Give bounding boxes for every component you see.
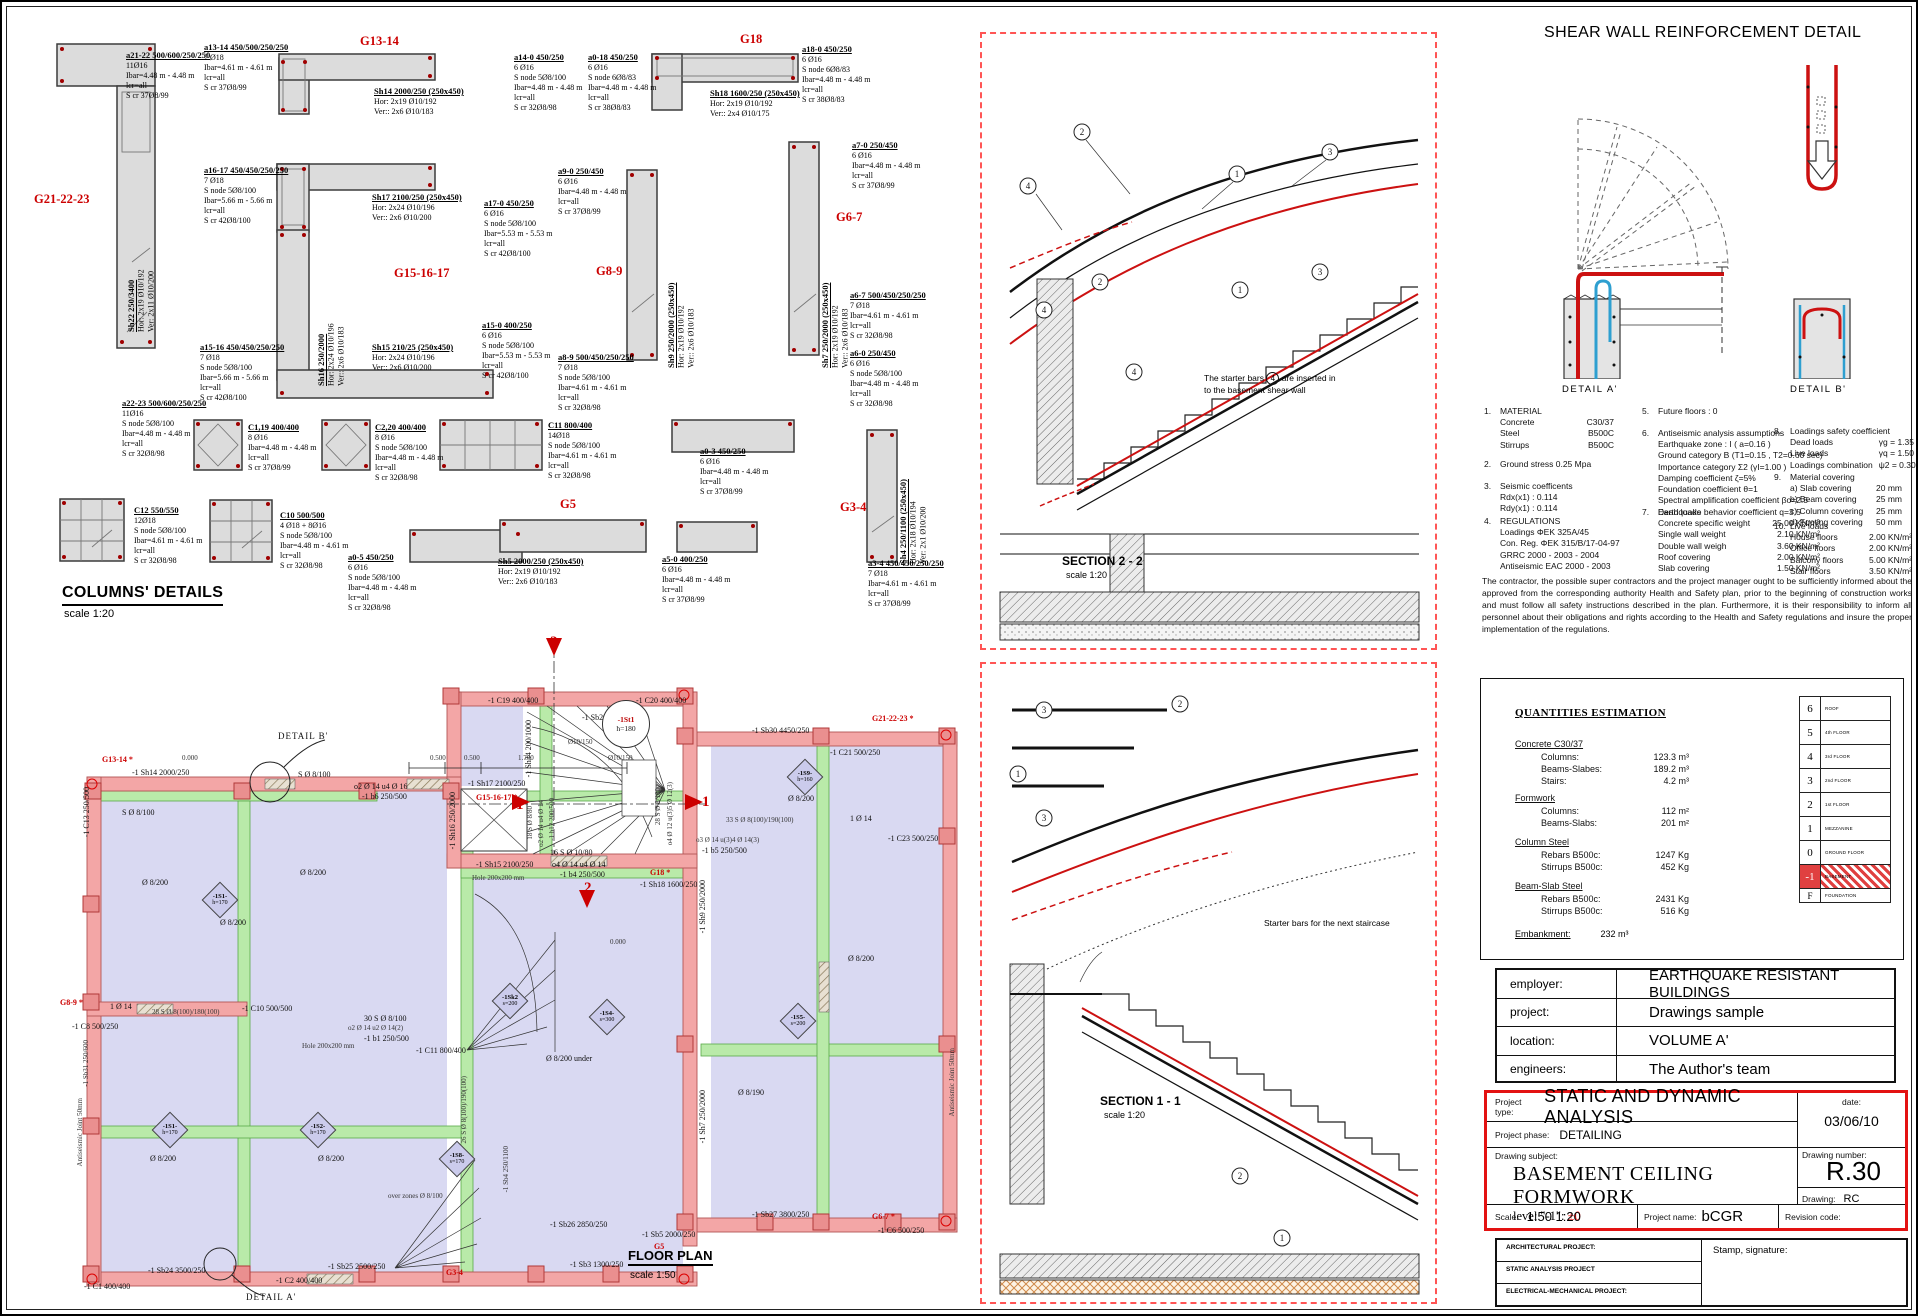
column-detail-a6-0: a6-0 250/4506 Ø16 S node 5Ø8/100 Ibar=4.… xyxy=(850,348,944,409)
plan-label-g21: G21-22-23 * xyxy=(872,714,914,723)
section-1-1-box: 3 2 1 3 2 1 Starter bars for the next st… xyxy=(980,662,1437,1304)
quantities-title: QUANTITIES ESTIMATION xyxy=(1515,707,1666,719)
plan-label-aj2: Antiseismic Joint 50mm xyxy=(76,1098,84,1166)
note-seismic: 3.Seismic coefficents Rdx(x1) : 0.114 Rd… xyxy=(1484,481,1624,515)
columns-details-title: COLUMNS' DETAILS xyxy=(62,584,223,606)
group-label-g3-4: G3-4 xyxy=(840,500,866,515)
column-detail-a3-4: a3-4 450/450/250/2507 Ø18 Ibar=4.61 m - … xyxy=(868,558,962,609)
plan-label-sb27: -1 Sb27 3800/250 xyxy=(752,1210,809,1219)
svg-text:1: 1 xyxy=(1016,769,1021,779)
section-2-2-title: SECTION 2 - 2 xyxy=(1062,554,1143,568)
plan-label-s1080: 16 S Ø 10/80 xyxy=(550,848,592,857)
plan-label-oz: over zones Ø 8/100 xyxy=(388,1192,443,1200)
project-info-table: employer:EARTHQUAKE RESISTANT BUILDINGS … xyxy=(1495,968,1896,1083)
column-detail-a7-0: a7-0 250/4506 Ø16 Ibar=4.48 m - 4.48 m l… xyxy=(852,140,946,191)
floor-row: 6ROOF xyxy=(1799,696,1891,721)
plan-marker-1a: 1 xyxy=(516,797,524,814)
plan-label-e0a: 0.000 xyxy=(182,754,198,762)
plan-label-g15: G15-16-17 * xyxy=(476,793,518,802)
plan-label-c2: -1 C2 400/400 xyxy=(276,1276,322,1285)
plan-label-sb5: -1 Sb5 2000/250 xyxy=(642,1230,695,1239)
plan-label-f15a: Ø10/150 xyxy=(568,738,593,746)
plan-label-s8b: S Ø 8/100 xyxy=(122,808,154,817)
drawing-subject-value: BASEMENT CEILING FORMWORK xyxy=(1513,1163,1797,1209)
plan-label-s28100: 28 S Ø 8/100 xyxy=(654,788,662,825)
plan-label-f190: Ø 8/190 xyxy=(738,1088,764,1097)
svg-text:3: 3 xyxy=(1328,147,1333,157)
drawing-value: RC xyxy=(1844,1193,1860,1205)
drawing-subject-label: Drawing subject: xyxy=(1495,1151,1797,1161)
plan-label-c10: -1 C10 500/500 xyxy=(242,1004,292,1013)
section-1-1-drawing: 3 2 1 3 2 1 xyxy=(982,664,1435,1302)
floors-diagram: 6ROOF54th FLOOR43rd FLOOR32nd FLOOR21st … xyxy=(1799,697,1891,903)
plan-label-f2e: Ø 8/200 xyxy=(848,954,874,963)
group-label-g18: G18 xyxy=(740,32,762,47)
svg-text:2: 2 xyxy=(1238,1171,1243,1181)
column-detail-a15-16: a15-16 450/450/250/2507 Ø18 S node 5Ø8/1… xyxy=(200,342,294,403)
plan-label-c20: -1 C20 400/400 xyxy=(636,696,686,705)
plan-label-b4: -1 b4 250/500 xyxy=(560,870,605,879)
section-2-2-scale: scale 1:20 xyxy=(1066,570,1107,580)
column-detail-a8-9: a8-9 500/450/250/2507 Ø18 S node 5Ø8/100… xyxy=(558,352,652,413)
floor-plan-drawing xyxy=(77,632,962,1304)
project-name-label: Project name: xyxy=(1644,1212,1696,1222)
plan-label-f2f: Ø 8/200 xyxy=(150,1154,176,1163)
plan-label-sh15: -1 Sh15 2100/250 xyxy=(476,860,533,869)
plan-label-c8: -1 C8 500/250 xyxy=(72,1022,118,1031)
plan-label-c11: -1 C11 800/400 xyxy=(416,1046,466,1055)
scale-label: Scale: xyxy=(1495,1212,1519,1222)
column-detail-sh16: Sh16 250/2000Hor: 2x24 Ø10/196 Ver:: 2x6… xyxy=(316,252,347,386)
column-detail-sh5: Sh5 2000/250 (250x450)Hor: 2x19 Ø10/192 … xyxy=(498,556,592,587)
plan-label-o2u416: o2 Ø 14 u4 Ø 16 xyxy=(354,782,408,791)
section-1-1-title: SECTION 1 - 1 xyxy=(1100,1094,1181,1108)
plan-label-o2u214: o2 Ø 14 u2 Ø 14(2) xyxy=(348,1024,403,1032)
drawing-sheet: G21-22-23 G13-14 G18 G15-16-17 G8-9 G6-7… xyxy=(0,0,1918,1316)
column-detail-c12: C12 550/55012Ø18 S node 5Ø8/100 Ibar=4.6… xyxy=(134,505,228,566)
project-type-label: Project type: xyxy=(1495,1097,1536,1117)
group-label-g5: G5 xyxy=(560,497,576,512)
plan-label-s28: 28 S Ø 8(100)/180(100) xyxy=(152,1008,219,1016)
column-detail-a9-0: a9-0 250/4506 Ø16 Ibar=4.48 m - 4.48 m l… xyxy=(558,166,652,217)
plan-label-c13: -1 C13 250/500 xyxy=(82,787,91,837)
section-2-2-drawing: 2 4 1 3 2 4 1 3 4 xyxy=(982,34,1435,648)
plan-label-f2d: Ø 8/200 xyxy=(788,794,814,803)
plan-label-b6: -1 b6 250/500 xyxy=(362,792,407,801)
group-label-g8-9: G8-9 xyxy=(596,264,622,279)
detail-a-label: DETAIL A' xyxy=(1562,384,1618,395)
plan-label-sb26: -1 Sb26 2850/250 xyxy=(550,1220,607,1229)
note-live-loads: 10.Live loads House floors2.00 KN/m²Offi… xyxy=(1774,521,1912,577)
plan-label-sh18: -1 Sh18 1600/250 xyxy=(640,880,697,889)
plan-label-s8a: S Ø 8/100 xyxy=(298,770,330,779)
plan-label-detail-a: DETAIL A' xyxy=(246,1292,296,1302)
revision-code-label: Revision code: xyxy=(1785,1212,1841,1222)
plan-label-c21: -1 C21 500/250 xyxy=(830,748,880,757)
plan-label-o4o12: o4 Ø 12 u(3)5 Ø 12(3) xyxy=(666,782,674,845)
project-phase-value: DETAILING xyxy=(1559,1128,1621,1142)
plan-label-o2u414: o2 Ø 14 u4 Ø 14 xyxy=(537,800,545,847)
note-regulations: 4.REGULATIONS Loadings ΦEK 325A/45 Con. … xyxy=(1484,516,1634,572)
column-detail-c11: C11 800/40014Ø18 S node 5Ø8/100 Ibar=4.6… xyxy=(548,420,642,481)
info-row: employer:EARTHQUAKE RESISTANT BUILDINGS xyxy=(1497,970,1894,999)
plan-label-c6: -1 C6 500/250 xyxy=(878,1226,924,1235)
floor-plan-scale: scale 1:50 xyxy=(630,1270,676,1281)
quantities-formwork: Formwork Columns:112 m²Beams-Slabs:201 m… xyxy=(1515,793,1739,829)
floor-plan-title: FLOOR PLAN xyxy=(628,1248,713,1266)
plan-label-sb3: -1 Sb3 1300/250 xyxy=(570,1260,623,1269)
plan-label-f2c: Ø 8/200 xyxy=(300,868,326,877)
column-detail-a6-7: a6-7 500/450/250/2507 Ø18 Ibar=4.61 m - … xyxy=(850,290,944,341)
plan-label-c1: -1 C1 400/400 xyxy=(84,1282,130,1291)
static-analysis-project-label: STATIC ANALYSIS PROJECT xyxy=(1497,1262,1701,1284)
svg-text:2: 2 xyxy=(1178,699,1183,709)
svg-text:1: 1 xyxy=(1235,169,1240,179)
drawing-number-value: R.30 xyxy=(1802,1156,1905,1187)
svg-text:4: 4 xyxy=(1042,305,1047,315)
title-block: Project type: STATIC AND DYNAMIC ANALYSI… xyxy=(1484,1090,1908,1231)
note-ground-stress: 2.Ground stress 0.25 Mpa xyxy=(1484,459,1624,470)
columns-details-scale: scale 1:20 xyxy=(64,608,114,620)
stair-label-circle: -1St1h=180 xyxy=(602,700,650,748)
column-detail-sh14: Sh14 2000/250 (250x450)Hor: 2x19 Ø10/192… xyxy=(374,86,468,117)
column-detail-a22-23: a22-23 500/600/250/25011Ø16 S node 5Ø8/1… xyxy=(122,398,216,459)
quantities-column-steel: Column Steel Rebars B500c:1247 KgStirrup… xyxy=(1515,837,1739,873)
floor-row: FFOUNDATION xyxy=(1799,888,1891,903)
column-detail-a13-14: a13-14 450/500/250/2507 Ø18 Ibar=4.61 m … xyxy=(204,42,298,93)
group-label-g13-14: G13-14 xyxy=(360,34,399,49)
shear-wall-drawing xyxy=(1492,57,1918,379)
plan-label-sb30: -1 Sb30 4450/250 xyxy=(752,726,809,735)
column-detail-a18-0: a18-0 450/2506 Ø16 S node 6Ø8/83 Ibar=4.… xyxy=(802,44,896,105)
plan-label-hole1: Hole 200x200 mm xyxy=(472,874,525,882)
safety-disclaimer: The contractor, the possible super contr… xyxy=(1482,576,1912,635)
section-1-1-scale: scale 1:20 xyxy=(1104,1110,1145,1120)
plan-label-sb25: -1 Sb25 2500/250 xyxy=(328,1262,385,1271)
column-detail-a0-18: a0-18 450/2506 Ø16 S node 6Ø8/83 Ibar=4.… xyxy=(588,52,682,113)
scale-value: 1:50 1:20 xyxy=(1527,1209,1581,1224)
stamp-signature-label: Stamp, signature: xyxy=(1702,1240,1906,1305)
shear-wall-title: SHEAR WALL REINFORCEMENT DETAIL xyxy=(1544,24,1861,42)
column-detail-a0-3: a0-3 450/2506 Ø16 Ibar=4.48 m - 4.48 m l… xyxy=(700,446,794,497)
plan-label-aj1: Antiseismic Joint 50mm xyxy=(948,1048,956,1116)
plan-label-g3: G3-4 xyxy=(446,1268,463,1277)
quantities-box: QUANTITIES ESTIMATION Concrete C30/37 Co… xyxy=(1480,678,1904,960)
plan-label-g8: G8-9 * xyxy=(60,998,83,1007)
note-material: 1.MATERIAL ConcreteC30/37SteelB500CStirr… xyxy=(1484,406,1614,451)
plan-label-c19: -1 C19 400/400 xyxy=(488,696,538,705)
floor-row: 43rd FLOOR xyxy=(1799,744,1891,769)
floor-row: -1BASEMENT xyxy=(1799,864,1891,889)
floor-row: 1MEZZANINE xyxy=(1799,816,1891,841)
column-detail-sh17: Sh17 2100/250 (250x450)Hor: 2x24 Ø10/196… xyxy=(372,192,466,223)
svg-text:3: 3 xyxy=(1318,267,1323,277)
svg-text:1: 1 xyxy=(1280,1233,1285,1243)
group-label-g21-22-23: G21-22-23 xyxy=(34,192,90,207)
column-detail-c2-20: C2,20 400/4008 Ø16 S node 5Ø8/100 Ibar=4… xyxy=(375,422,469,483)
svg-text:4: 4 xyxy=(1026,181,1031,191)
plan-label-f2b: Ø 8/200 xyxy=(142,878,168,887)
svg-text:1: 1 xyxy=(1238,285,1243,295)
plan-label-s33: 33 S Ø 8(100)/190(100) xyxy=(726,816,793,824)
plan-label-g13: G13-14 * xyxy=(102,755,133,764)
plan-label-o4u414: o4 Ø 14 u4 Ø 14 xyxy=(552,860,606,869)
column-detail-sh9: Sh9 250/2000 (250x450)Hor: 2x19 Ø10/192 … xyxy=(666,234,697,368)
plan-label-s26: 26 S Ø 8(100)/190(100) xyxy=(460,1076,468,1143)
floor-row: 21st FLOOR xyxy=(1799,792,1891,817)
drawing-label: Drawing: xyxy=(1802,1194,1836,1204)
plan-label-i14a: 1 Ø 14 xyxy=(850,814,872,823)
plan-label-sb24: -1 Sb24 3500/250 xyxy=(148,1266,205,1275)
column-detail-a0-5: a0-5 450/2506 Ø16 S node 5Ø8/100 Ibar=4.… xyxy=(348,552,442,613)
plan-label-sh17: -1 Sh17 2100/250 xyxy=(468,779,525,788)
floor-row: 0GROUND FLOOR xyxy=(1799,840,1891,865)
plan-label-f2g: Ø 8/200 xyxy=(318,1154,344,1163)
plan-label-b5: -1 b5 250/500 xyxy=(702,846,747,855)
plan-label-s30: 30 S Ø 8/100 xyxy=(364,1014,406,1023)
group-label-g15-16-17: G15-16-17 xyxy=(394,266,450,281)
plan-label-sh34: -1 Sh34 200/1000 xyxy=(524,720,533,777)
floor-row: 54th FLOOR xyxy=(1799,720,1891,745)
plan-label-g18: G18 * xyxy=(650,868,670,877)
project-name-value: bCGR xyxy=(1701,1208,1743,1225)
quantities-concrete: Concrete C30/37 Columns:123.3 m³Beams-Sl… xyxy=(1515,739,1739,787)
column-detail-c1-19: C1,19 400/4008 Ø16 Ibar=4.48 m - 4.48 m … xyxy=(248,422,342,473)
plan-label-f2a: Ø 8/200 xyxy=(220,918,246,927)
section-2-2-box: 2 4 1 3 2 4 1 3 4 The starter bars 4 are… xyxy=(980,32,1437,650)
svg-text:3: 3 xyxy=(1042,813,1047,823)
plan-marker-2a: 2 xyxy=(550,634,558,651)
plan-label-o3u34: o3 Ø 14 u(3)4 Ø 14(3) xyxy=(696,836,759,844)
plan-label-f15b: Ø10/150 xyxy=(608,754,633,762)
plan-label-i14b: 1 Ø 14 xyxy=(110,1002,132,1011)
plan-label-sh16: -1 Sh16 250/2000 xyxy=(448,792,457,849)
section-1-1-note: Starter bars for the next staircase xyxy=(1264,918,1390,929)
plan-label-sb31: -1 Sb31 250/600 xyxy=(82,1040,90,1087)
plan-dim-500a: 0.500 xyxy=(430,754,446,762)
column-detail-sh4: Sh4 250/1100 (250x450)Hor: 2x18 Ø10/194 … xyxy=(898,430,929,564)
group-label-g6-7: G6-7 xyxy=(836,210,862,225)
floor-row: 32nd FLOOR xyxy=(1799,768,1891,793)
info-row: engineers:The Author's team xyxy=(1497,1056,1894,1084)
column-detail-sh15: Sh15 210/25 (250x450)Hor: 2x24 Ø10/196 V… xyxy=(372,342,466,373)
detail-b-label: DETAIL B' xyxy=(1790,384,1847,395)
plan-label-sh9: -1 Sh9 250/2000 xyxy=(698,880,707,933)
date-value: 03/06/10 xyxy=(1798,1113,1905,1129)
architectural-project-label: ARCHITECTURAL PROJECT: xyxy=(1497,1240,1701,1262)
svg-text:2: 2 xyxy=(1098,277,1103,287)
column-detail-sh22: Sh22 250/3400Hor: 2x19 Ø10/192 Ver: 2x11… xyxy=(126,198,157,332)
plan-marker-1b: 1 xyxy=(702,794,710,811)
quantities-embankment: Embankment:232 m³ xyxy=(1515,929,1629,939)
svg-text:3: 3 xyxy=(1042,705,1047,715)
svg-text:4: 4 xyxy=(1132,367,1137,377)
column-detail-a16-17: a16-17 450/450/250/2507 Ø18 S node 5Ø8/1… xyxy=(204,165,298,226)
note-material-covering: 9.Material covering a) Slab covering20 m… xyxy=(1774,472,1902,528)
electrical-mechanical-project-label: ELECTRICAL-MECHANICAL PROJECT: xyxy=(1497,1284,1701,1305)
column-detail-sh18: Sh18 1600/250 (250x450)Hor: 2x19 Ø10/192… xyxy=(710,88,804,119)
plan-marker-2b: 2 xyxy=(584,880,592,897)
project-phase-label: Project phase: xyxy=(1495,1130,1549,1140)
plan-label-s880: 18 S Ø 8/80 xyxy=(526,806,534,840)
plan-label-e0b: 0.000 xyxy=(610,938,626,946)
plan-label-hole2: Hole 200x200 mm xyxy=(302,1042,355,1050)
plan-label-sh7: -1 Sh7 250/2000 xyxy=(698,1090,707,1143)
info-row: project:Drawings sample xyxy=(1497,999,1894,1028)
svg-text:2: 2 xyxy=(1080,127,1085,137)
plan-label-b12: -1 b12 200/500 xyxy=(548,798,556,841)
plan-label-f2u: Ø 8/200 under xyxy=(546,1054,592,1063)
note-safety-coefficients: 8.Loadings safety coefficient Dead loads… xyxy=(1774,426,1914,471)
plan-label-detail-b: DETAIL B' xyxy=(278,731,328,741)
column-detail-sh7: Sh7 250/2000 (250x450)Hor: 2x19 Ø10/192 … xyxy=(820,234,851,368)
quantities-beam-slab-steel: Beam-Slab Steel Rebars B500c:2431 KgStir… xyxy=(1515,881,1739,917)
info-row: location:VOLUME A' xyxy=(1497,1027,1894,1056)
signature-block: ARCHITECTURAL PROJECT: STATIC ANALYSIS P… xyxy=(1495,1238,1908,1307)
plan-label-g6: G6-7 * xyxy=(872,1212,895,1221)
date-label: date: xyxy=(1798,1097,1905,1107)
column-detail-a5-0: a5-0 400/2506 Ø16 Ibar=4.48 m - 4.48 m l… xyxy=(662,554,756,605)
section-2-2-note: The starter bars 4 are inserted in to th… xyxy=(1204,372,1364,396)
note-future-floors: 5.Future floors : 0 xyxy=(1642,406,1812,417)
plan-label-b1: -1 b1 250/500 xyxy=(364,1034,409,1043)
plan-label-sh14: -1 Sh14 2000/250 xyxy=(132,768,189,777)
plan-dim-500b: 0.500 xyxy=(464,754,480,762)
plan-label-c23: -1 C23 500/250 xyxy=(888,834,938,843)
plan-label-sb4: -1 Sb4 250/1100 xyxy=(502,1146,510,1192)
